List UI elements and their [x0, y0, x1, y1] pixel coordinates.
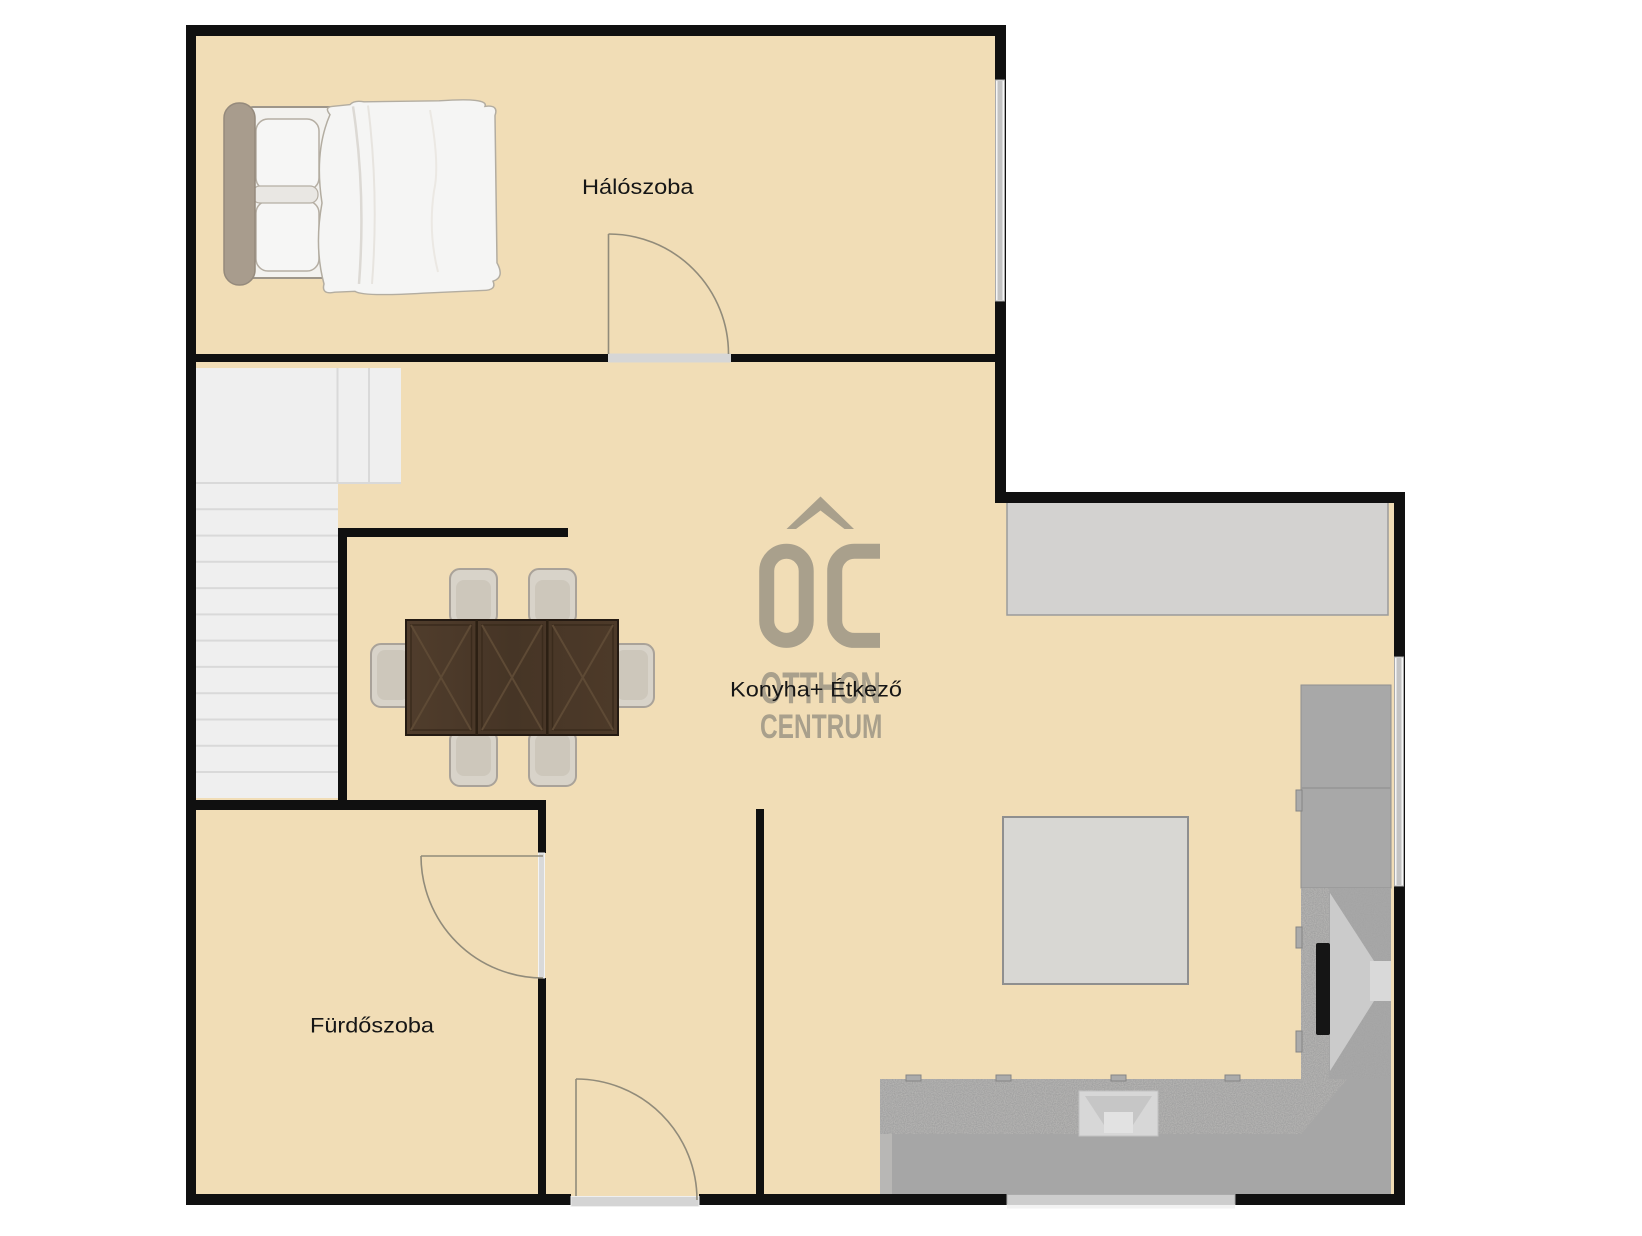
svg-text:Fürdőszoba: Fürdőszoba: [310, 1013, 434, 1037]
svg-text:Hálószoba: Hálószoba: [582, 175, 694, 199]
svg-text:Konyha+ Étkező: Konyha+ Étkező: [730, 677, 902, 702]
svg-text:CENTRUM: CENTRUM: [760, 708, 882, 746]
